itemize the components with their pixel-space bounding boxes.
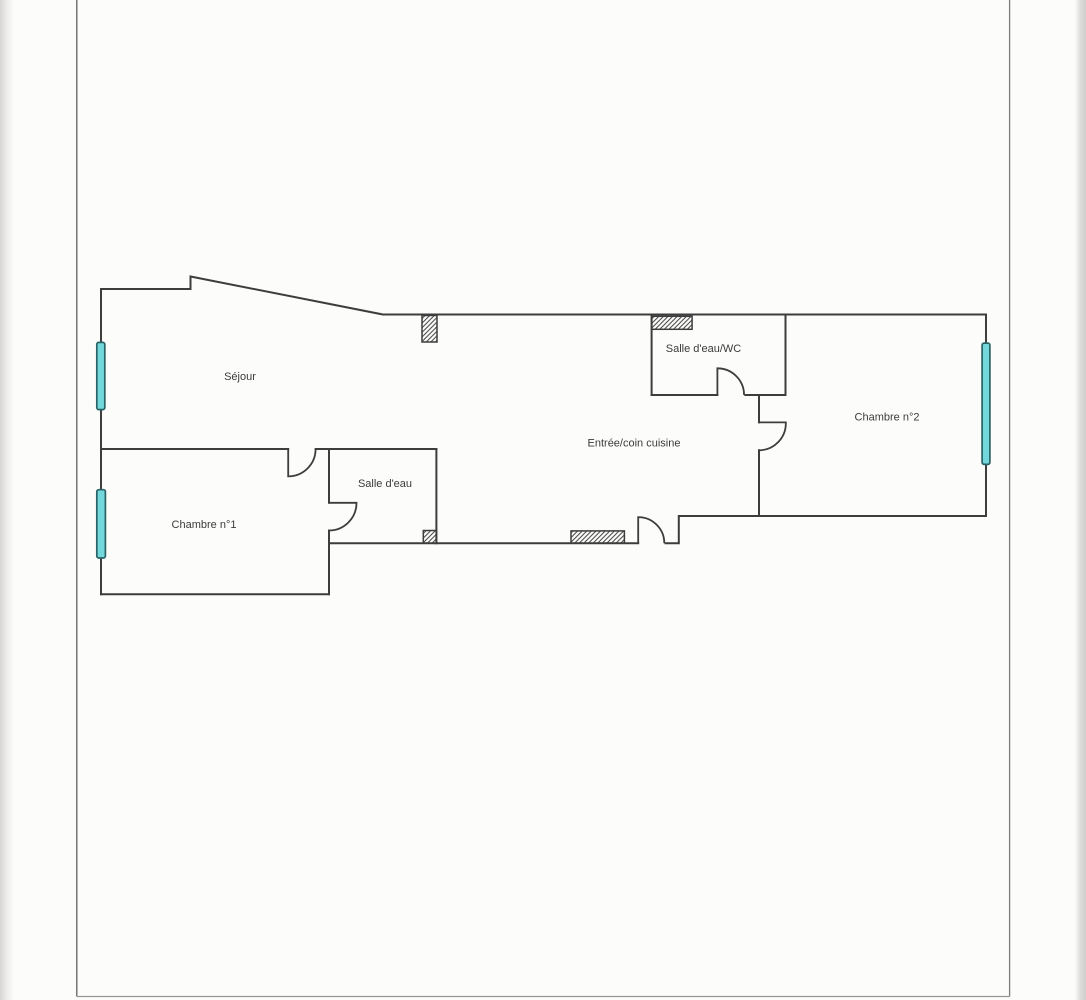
svg-text:Séjour: Séjour <box>224 371 256 383</box>
svg-text:Chambre n°1: Chambre n°1 <box>172 519 237 531</box>
svg-text:Salle d'eau: Salle d'eau <box>358 478 412 490</box>
svg-text:Salle d'eau/WC: Salle d'eau/WC <box>666 343 742 355</box>
svg-text:Chambre n°2: Chambre n°2 <box>855 412 920 424</box>
svg-text:Entrée/coin cuisine: Entrée/coin cuisine <box>588 438 681 450</box>
